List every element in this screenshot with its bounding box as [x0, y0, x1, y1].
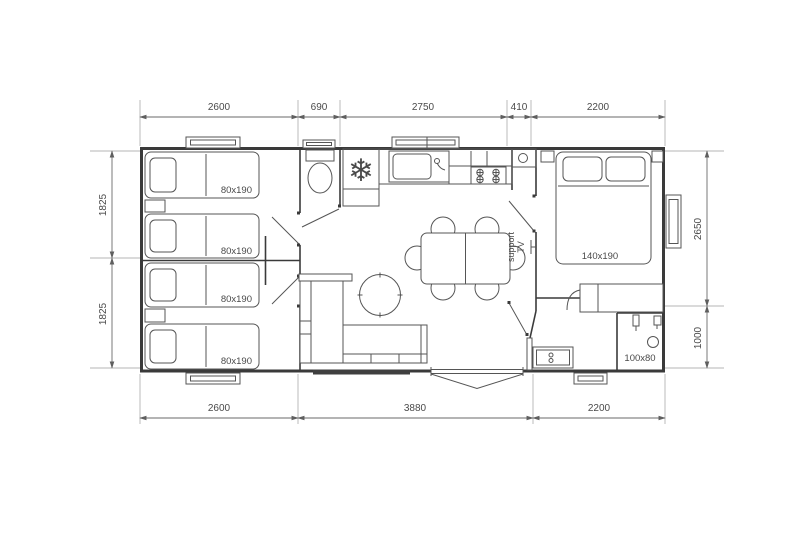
dim-bottom-1: 2600	[208, 403, 231, 414]
dim-top-2: 690	[311, 102, 328, 113]
shower-fixture	[633, 315, 639, 326]
dim-left-2: 1825	[98, 302, 109, 325]
shower-fixture	[654, 316, 661, 325]
dining-table	[421, 233, 510, 284]
dim-bottom-2: 3880	[404, 403, 427, 414]
dim-top-4: 410	[511, 102, 528, 113]
window-top-bedroom	[186, 137, 240, 148]
fridge: ❄	[343, 149, 379, 206]
water-heater	[512, 149, 536, 167]
dimensions-bottom: 2600 3880 2200	[140, 403, 665, 418]
kitchen-sink	[389, 151, 449, 182]
round-table	[358, 273, 403, 318]
entrance-door-swing	[431, 374, 523, 389]
dimensions-left: 1825 1825	[98, 151, 112, 368]
single-bed-4: 80x190	[145, 324, 259, 369]
window-bottom-bathroom	[574, 373, 607, 384]
tv-support-label-2: TV	[516, 241, 526, 253]
double-bed: 140x190	[556, 152, 651, 264]
stove-hob	[471, 167, 506, 184]
floor-plan-page: 2600 690 2750 410 2200 2600 3880 2200 18…	[0, 0, 800, 534]
tv-support-label-1: support	[506, 231, 516, 262]
wc-room	[306, 150, 334, 193]
floor-plan-canvas: 2600 690 2750 410 2200 2600 3880 2200 18…	[0, 0, 800, 534]
window-top-kitchen	[392, 137, 459, 148]
nightstand	[652, 151, 663, 162]
toilet-cistern	[306, 150, 334, 161]
nightstand	[145, 309, 165, 322]
wc-door-leaf	[302, 209, 339, 227]
bathroom-vanity	[533, 347, 573, 368]
master-door-leaf	[509, 201, 534, 231]
shower-size-label: 100x80	[624, 353, 655, 364]
bed-size-label: 80x190	[221, 246, 252, 257]
entrance-door	[431, 367, 523, 389]
dim-top-1: 2600	[208, 102, 231, 113]
nightstand	[541, 151, 554, 162]
single-bed-2: 80x190	[145, 214, 259, 258]
dim-right-1: 2650	[693, 217, 704, 240]
dim-bottom-3: 2200	[588, 403, 611, 414]
dim-left-1: 1825	[98, 193, 109, 216]
bedroom1-door-leaf	[272, 217, 300, 245]
window-bottom-bedroom	[186, 373, 240, 384]
bed-size-label: 140x190	[582, 251, 618, 262]
window-top-wc	[303, 140, 335, 148]
wardrobe	[567, 284, 663, 312]
dimensions-right: 2650 1000	[693, 151, 707, 368]
bedroom2-door-leaf	[272, 276, 300, 304]
dim-right-2: 1000	[693, 326, 704, 349]
shower-room: 100x80	[624, 315, 661, 364]
bed-size-label: 80x190	[221, 356, 252, 367]
dimensions-top: 2600 690 2750 410 2200	[140, 102, 665, 117]
bed-size-label: 80x190	[221, 294, 252, 305]
master-bedroom: 140x190	[541, 151, 663, 312]
single-bed-1: 80x190	[145, 152, 259, 198]
window-band-living	[313, 370, 410, 375]
living-area: support TV	[299, 217, 536, 363]
dim-top-5: 2200	[587, 102, 610, 113]
nightstand	[145, 200, 165, 212]
shower-drain	[648, 337, 659, 348]
dim-top-3: 2750	[412, 102, 435, 113]
toilet-bowl	[308, 163, 332, 193]
kitchen	[379, 149, 536, 184]
bathroom-door-leaf	[509, 303, 527, 335]
single-bed-3: 80x190	[145, 263, 259, 307]
bed-size-label: 80x190	[221, 185, 252, 196]
snowflake-icon: ❄	[348, 153, 374, 188]
window-right-master	[666, 195, 681, 248]
